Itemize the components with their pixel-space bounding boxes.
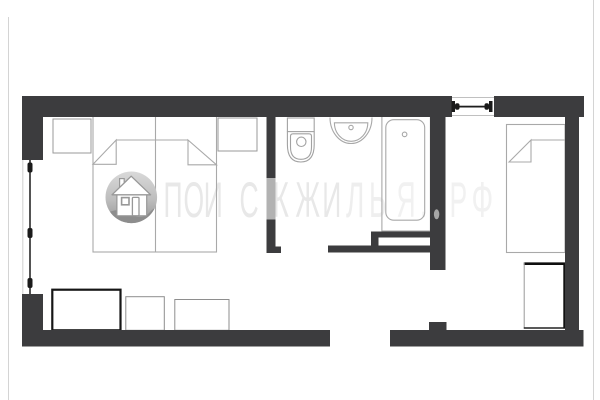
svg-text:Ж: Ж <box>296 173 321 228</box>
svg-text:С: С <box>240 173 259 228</box>
svg-text:О: О <box>184 173 205 228</box>
svg-text:П: П <box>164 173 183 228</box>
svg-text:Л: Л <box>346 171 364 228</box>
svg-text:И: И <box>322 173 341 228</box>
svg-text:Ь: Ь <box>369 173 386 228</box>
svg-text:И: И <box>204 173 223 228</box>
svg-text:Р: Р <box>450 173 468 228</box>
svg-text:Ф: Ф <box>472 171 494 228</box>
svg-text:.: . <box>420 173 427 228</box>
